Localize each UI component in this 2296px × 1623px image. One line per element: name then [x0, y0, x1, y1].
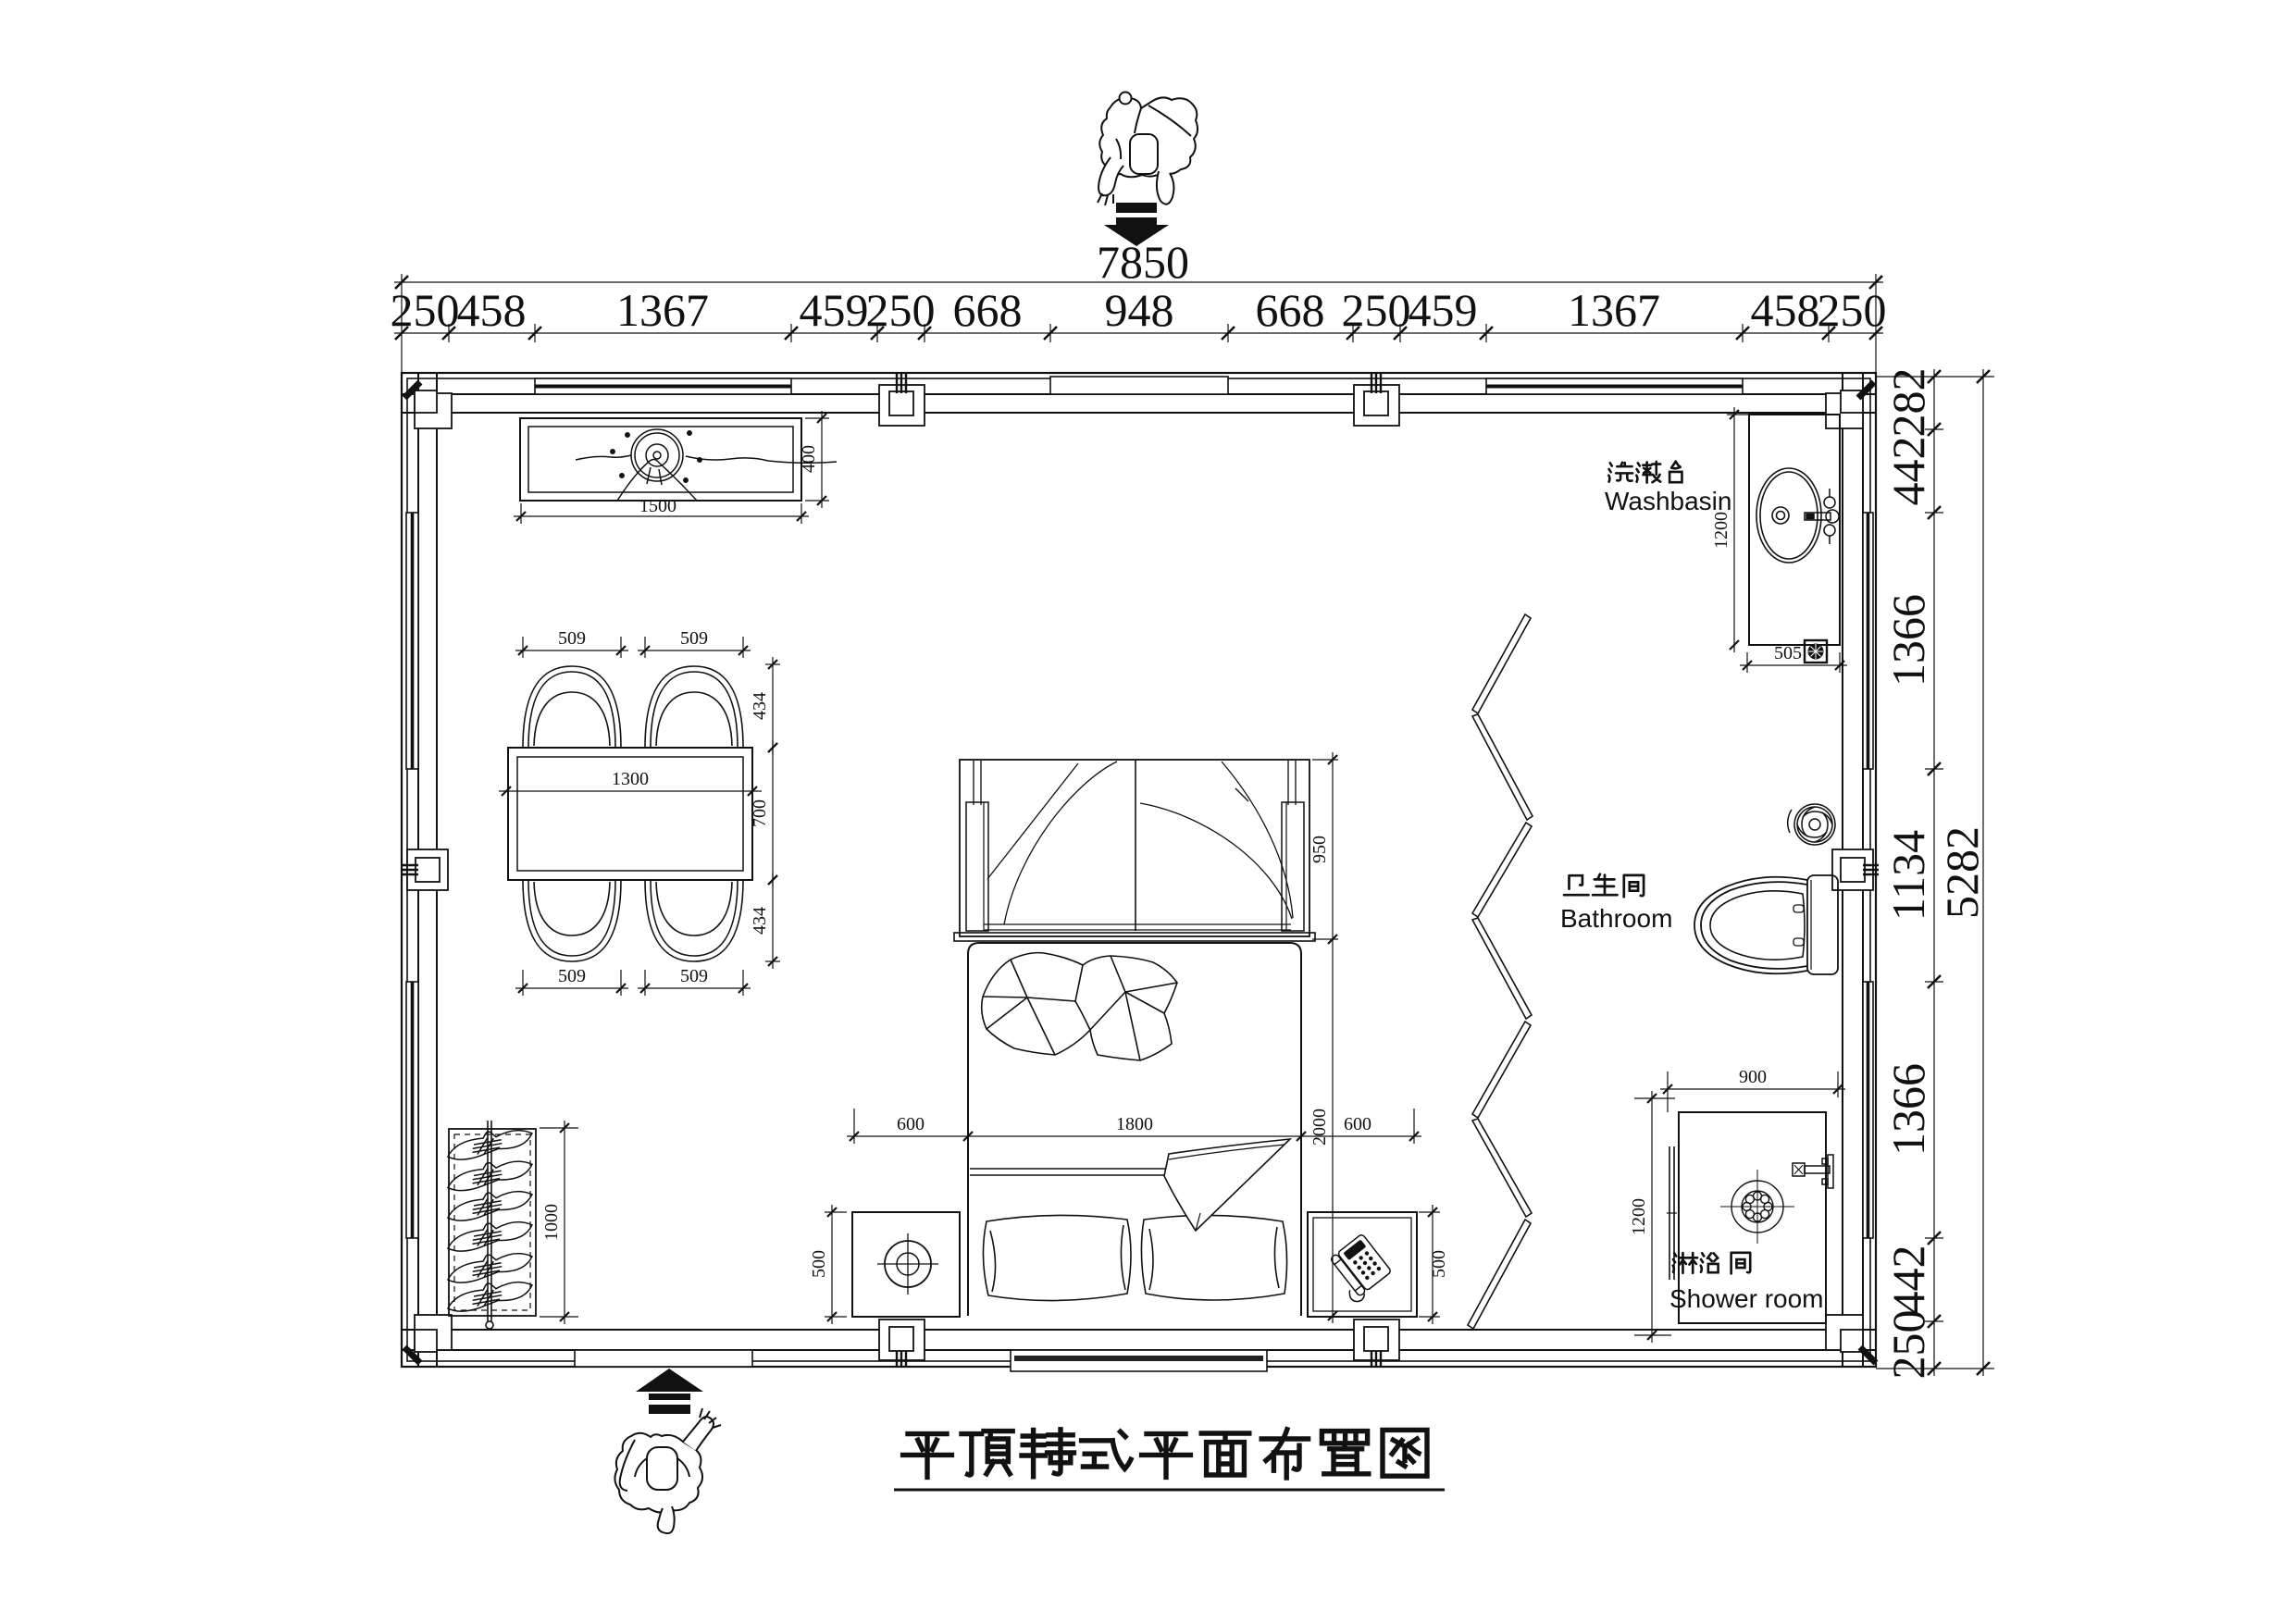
svg-text:509: 509 [558, 628, 586, 649]
svg-text:509: 509 [558, 966, 586, 986]
svg-text:5282: 5282 [1936, 826, 1988, 919]
svg-text:Washbasin: Washbasin [1605, 487, 1731, 515]
svg-text:1500: 1500 [639, 496, 676, 516]
svg-text:509: 509 [680, 966, 708, 986]
svg-text:1366: 1366 [1882, 594, 1934, 687]
svg-text:250: 250 [1342, 284, 1411, 336]
svg-text:600: 600 [897, 1114, 925, 1134]
svg-text:668: 668 [953, 284, 1023, 336]
svg-text:459: 459 [800, 284, 869, 336]
svg-text:Bathroom: Bathroom [1560, 904, 1672, 933]
svg-text:250: 250 [391, 284, 460, 336]
svg-text:442: 442 [1882, 437, 1934, 506]
svg-text:282: 282 [1882, 368, 1934, 438]
svg-text:1300: 1300 [612, 769, 649, 789]
svg-text:1000: 1000 [541, 1204, 562, 1241]
svg-text:1366: 1366 [1882, 1063, 1934, 1156]
svg-text:400: 400 [799, 445, 819, 473]
svg-text:250: 250 [866, 284, 936, 336]
svg-text:250: 250 [1882, 1310, 1934, 1380]
svg-text:700: 700 [750, 799, 770, 827]
svg-text:500: 500 [1429, 1250, 1449, 1278]
svg-text:442: 442 [1882, 1245, 1934, 1315]
svg-text:7850: 7850 [1097, 236, 1189, 288]
svg-text:1800: 1800 [1116, 1114, 1153, 1134]
svg-text:434: 434 [750, 692, 770, 720]
svg-text:900: 900 [1739, 1067, 1767, 1087]
svg-text:505: 505 [1774, 643, 1802, 663]
svg-text:Shower room: Shower room [1669, 1284, 1824, 1313]
svg-text:500: 500 [809, 1250, 829, 1278]
svg-text:1367: 1367 [616, 284, 709, 336]
svg-text:1134: 1134 [1882, 830, 1934, 921]
svg-text:434: 434 [750, 907, 770, 935]
svg-text:1200: 1200 [1711, 512, 1731, 549]
svg-text:1200: 1200 [1629, 1198, 1649, 1235]
svg-text:509: 509 [680, 628, 708, 649]
svg-text:458: 458 [1751, 284, 1820, 336]
svg-text:950: 950 [1309, 836, 1330, 863]
svg-text:1367: 1367 [1568, 284, 1660, 336]
svg-text:668: 668 [1256, 284, 1325, 336]
svg-text:459: 459 [1409, 284, 1478, 336]
svg-text:600: 600 [1344, 1114, 1371, 1134]
svg-text:2000: 2000 [1309, 1109, 1330, 1146]
svg-text:458: 458 [457, 284, 527, 336]
svg-text:250: 250 [1818, 284, 1887, 336]
svg-text:948: 948 [1105, 284, 1174, 336]
